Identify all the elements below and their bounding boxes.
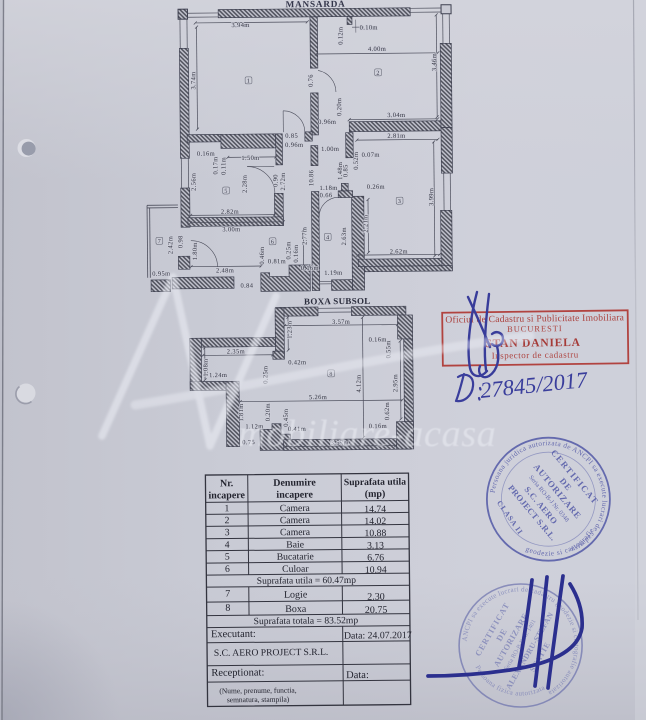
svg-text:3.57m: 3.57m [332, 319, 350, 326]
svg-text:Data:: Data: [346, 670, 369, 681]
svg-text:3.00m: 3.00m [222, 226, 240, 233]
svg-text:Denumire: Denumire [273, 477, 316, 488]
svg-text:3.13: 3.13 [367, 540, 384, 551]
svg-text:10.94: 10.94 [365, 565, 387, 576]
svg-text:Camera: Camera [280, 527, 311, 538]
svg-text:0.96m: 0.96m [285, 142, 303, 149]
svg-text:Bucatarie: Bucatarie [277, 551, 314, 562]
svg-text:4.12m: 4.12m [356, 374, 363, 392]
svg-text:2.63m: 2.63m [341, 227, 348, 245]
svg-text:MANSARDA: MANSARDA [286, 0, 346, 9]
svg-text:Culoar: Culoar [282, 564, 309, 575]
svg-text:2.30: 2.30 [367, 592, 385, 603]
svg-text:BUCURESTI: BUCURESTI [507, 324, 563, 334]
svg-text:0.16m: 0.16m [369, 336, 387, 343]
svg-text:6: 6 [271, 240, 274, 246]
svg-text:3.94m: 3.94m [231, 22, 249, 29]
svg-text:Suprafata utila: Suprafata utila [344, 477, 406, 489]
svg-text:2: 2 [376, 71, 379, 77]
svg-text:1.19m: 1.19m [324, 270, 342, 277]
svg-text:0.85: 0.85 [285, 133, 298, 140]
svg-text:3: 3 [398, 199, 401, 205]
svg-text:2.72m: 2.72m [280, 172, 287, 190]
svg-text:0.11m: 0.11m [220, 157, 227, 175]
svg-text:0.76: 0.76 [308, 74, 315, 87]
svg-text:5: 5 [224, 189, 227, 195]
svg-text:S.C. AERO PROJECT S.R.L.: S.C. AERO PROJECT S.R.L. [214, 647, 329, 659]
svg-text:0.07m: 0.07m [362, 152, 380, 159]
svg-text:3: 3 [225, 527, 230, 538]
svg-text:2.42m: 2.42m [167, 236, 174, 254]
svg-text:0.66: 0.66 [320, 192, 333, 199]
svg-text:1.50m: 1.50m [241, 155, 259, 162]
svg-text:2: 2 [225, 515, 230, 526]
svg-text:10.88: 10.88 [364, 528, 386, 539]
svg-text:Camera: Camera [280, 503, 311, 514]
svg-text:(mp): (mp) [365, 489, 386, 500]
svg-text:5: 5 [225, 552, 230, 563]
svg-text:0.25m: 0.25m [285, 241, 292, 259]
svg-text:0.16m: 0.16m [293, 244, 300, 262]
svg-text:3.99m: 3.99m [428, 188, 435, 206]
svg-text:0.12m: 0.12m [337, 27, 344, 45]
svg-text:BOXA SUBSOL: BOXA SUBSOL [304, 296, 371, 307]
svg-text:0.26m: 0.26m [367, 184, 385, 191]
svg-text:6: 6 [225, 564, 230, 575]
svg-text:semnatura, stampila): semnatura, stampila) [227, 695, 290, 705]
svg-text:0.96m: 0.96m [318, 119, 336, 126]
svg-text:Receptionat:: Receptionat: [211, 667, 264, 679]
svg-text:1.48m: 1.48m [337, 162, 344, 180]
svg-text:0.10m: 0.10m [360, 24, 378, 31]
svg-text:2.28m: 2.28m [242, 175, 249, 193]
svg-text:1.80m: 1.80m [192, 242, 199, 260]
svg-text:Nr.: Nr. [220, 478, 234, 489]
svg-text:incapere: incapere [276, 489, 313, 500]
svg-text:14.74: 14.74 [364, 504, 386, 515]
svg-text:1.23m: 1.23m [286, 321, 293, 339]
svg-text:2.77m: 2.77m [301, 227, 308, 245]
svg-text:0.46m: 0.46m [259, 246, 266, 264]
svg-text:6.76: 6.76 [367, 552, 384, 563]
svg-text:0.98: 0.98 [177, 235, 184, 248]
svg-text:1: 1 [247, 79, 250, 85]
svg-text:0.90: 0.90 [272, 174, 279, 187]
svg-text:1: 1 [224, 503, 229, 514]
svg-text:0.20m: 0.20m [336, 98, 343, 116]
svg-text:10.86: 10.86 [308, 169, 315, 186]
svg-text:1.00m: 1.00m [321, 146, 339, 153]
svg-text:0.81m: 0.81m [268, 258, 286, 265]
svg-text:3.74m: 3.74m [190, 71, 197, 89]
svg-text:Data: 24.07.2017: Data: 24.07.2017 [344, 630, 412, 642]
svg-text:7: 7 [158, 239, 161, 245]
svg-text:3.04m: 3.04m [387, 112, 405, 119]
svg-text:5.26m: 5.26m [309, 394, 327, 401]
svg-text:Logie: Logie [284, 590, 308, 601]
svg-text:Inspector de cadastru: Inspector de cadastru [492, 349, 579, 360]
svg-text:0.84: 0.84 [240, 283, 253, 290]
svg-text:2.81m: 2.81m [387, 133, 405, 140]
svg-text:Boxa: Boxa [285, 604, 307, 615]
svg-text:Suprafata totala = 83.52mp: Suprafata totala = 83.52mp [254, 615, 359, 627]
svg-text:1.24m: 1.24m [209, 372, 227, 379]
svg-text:0.42m: 0.42m [288, 359, 306, 366]
svg-text:2.21m: 2.21m [362, 214, 369, 232]
svg-text:incapere: incapere [208, 490, 245, 501]
svg-text:Suprafata utila = 60.47mp: Suprafata utila = 60.47mp [257, 575, 357, 587]
svg-text:4: 4 [225, 540, 230, 551]
svg-text:Camera: Camera [280, 515, 311, 526]
svg-text:0.17m: 0.17m [212, 156, 219, 174]
svg-text:0.16m: 0.16m [301, 265, 319, 272]
svg-text:mobiliare-acasa: mobiliare-acasa [238, 413, 496, 455]
svg-text:3.46m: 3.46m [431, 53, 438, 71]
svg-text:Executant:: Executant: [211, 629, 256, 640]
svg-text:1.18m: 1.18m [319, 185, 337, 192]
svg-text:2.62m: 2.62m [390, 248, 408, 255]
svg-text:Baie: Baie [286, 539, 304, 550]
svg-text:2.82m: 2.82m [221, 209, 239, 216]
svg-text:4: 4 [326, 235, 329, 241]
svg-text:2.35m: 2.35m [227, 348, 245, 355]
svg-text:8: 8 [225, 603, 230, 614]
svg-text:0.95m: 0.95m [152, 271, 170, 278]
svg-text:4.00m: 4.00m [368, 46, 386, 53]
svg-text:7: 7 [225, 589, 230, 600]
svg-text:14.02: 14.02 [364, 516, 386, 527]
svg-text:2.56m: 2.56m [191, 173, 198, 191]
svg-text:2.48m: 2.48m [216, 267, 234, 274]
svg-text:0.52m: 0.52m [353, 152, 360, 170]
svg-text:2.95m: 2.95m [392, 374, 399, 392]
svg-text:20.75: 20.75 [365, 605, 388, 616]
